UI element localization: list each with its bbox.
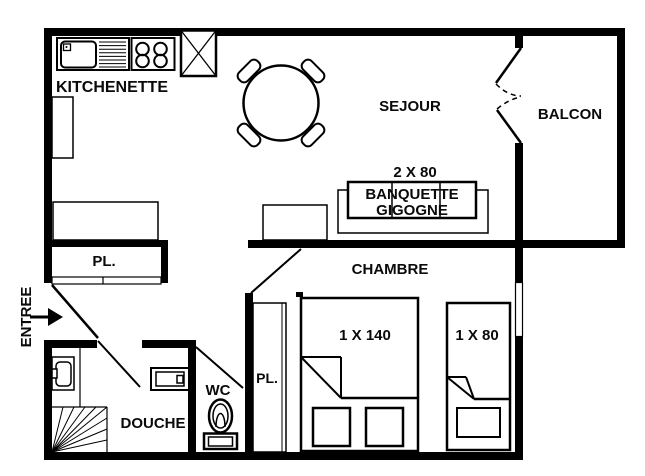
- dining-set: [236, 58, 327, 149]
- washbasin-icon: [52, 357, 74, 390]
- french-door-leaf-icon: [497, 110, 521, 143]
- label-closet-hall: PL.: [92, 253, 115, 270]
- label-entree: ENTREE: [18, 287, 35, 348]
- label-bed-large-dimension: 1 X 140: [339, 327, 391, 344]
- label-closet-chambre: PL.: [256, 370, 278, 386]
- wall-douche-top-right: [142, 340, 196, 348]
- wall-left-lower: [44, 340, 52, 460]
- door-arc: [497, 97, 521, 109]
- wall-door-stub: [296, 292, 303, 297]
- label-wc: WC: [206, 382, 231, 399]
- bed-large: [301, 298, 418, 451]
- vent-shaft-icon: [181, 31, 216, 77]
- label-sejour: SEJOUR: [379, 98, 441, 115]
- wall-closet-hall-right: [161, 240, 168, 283]
- label-banquette-dimension: 2 X 80: [393, 164, 436, 181]
- wall-hall-chambre: [245, 293, 253, 452]
- sideboard-right: [263, 205, 327, 240]
- window-icon: [516, 283, 523, 337]
- douche-door-swing-icon: [98, 341, 140, 387]
- balcony-french-doors: [496, 48, 521, 143]
- wall-right-c: [515, 341, 523, 452]
- wall-bottom: [44, 452, 523, 460]
- label-douche: DOUCHE: [120, 415, 185, 432]
- toilet-icon: [204, 400, 237, 450]
- sideboard-left: [53, 202, 158, 240]
- wall-closet-hall-top: [44, 240, 168, 247]
- dining-table-icon: [244, 66, 319, 141]
- closet-hall-sliding-door: [52, 277, 161, 284]
- label-bed-small-dimension: 1 X 80: [455, 327, 498, 344]
- floorplan-drawing: KITCHENETTE SEJOUR BALCON CHAMBRE DOUCHE…: [0, 0, 645, 476]
- wall-douche-top-left: [52, 340, 97, 348]
- wall-top: [44, 28, 625, 36]
- floorplan: KITCHENETTE SEJOUR BALCON CHAMBRE DOUCHE…: [0, 0, 645, 476]
- label-chambre: CHAMBRE: [352, 261, 429, 278]
- door-arc: [496, 84, 521, 96]
- label-kitchenette: KITCHENETTE: [56, 79, 168, 96]
- french-door-leaf-icon: [496, 48, 521, 83]
- sink-icon: [61, 42, 96, 68]
- label-banquette-line1: BANQUETTE: [365, 186, 458, 203]
- label-balcon: BALCON: [538, 106, 602, 123]
- kitchen-block: [57, 31, 216, 77]
- label-banquette-line2: GIGOGNE: [376, 202, 448, 219]
- shower-tray-icon: [151, 368, 190, 390]
- bed-small: [447, 303, 510, 450]
- wall-right-b: [515, 143, 523, 278]
- chambre-door-swing-icon: [251, 249, 301, 293]
- entry-door-swing-icon: [52, 285, 98, 338]
- stairs-icon: [52, 407, 107, 452]
- wall-right-a: [515, 28, 523, 48]
- fridge-icon: [52, 97, 73, 158]
- wall-douche-wc: [188, 340, 196, 452]
- wall-balcony-right: [617, 28, 625, 248]
- wall-sejour-chambre: [248, 240, 625, 248]
